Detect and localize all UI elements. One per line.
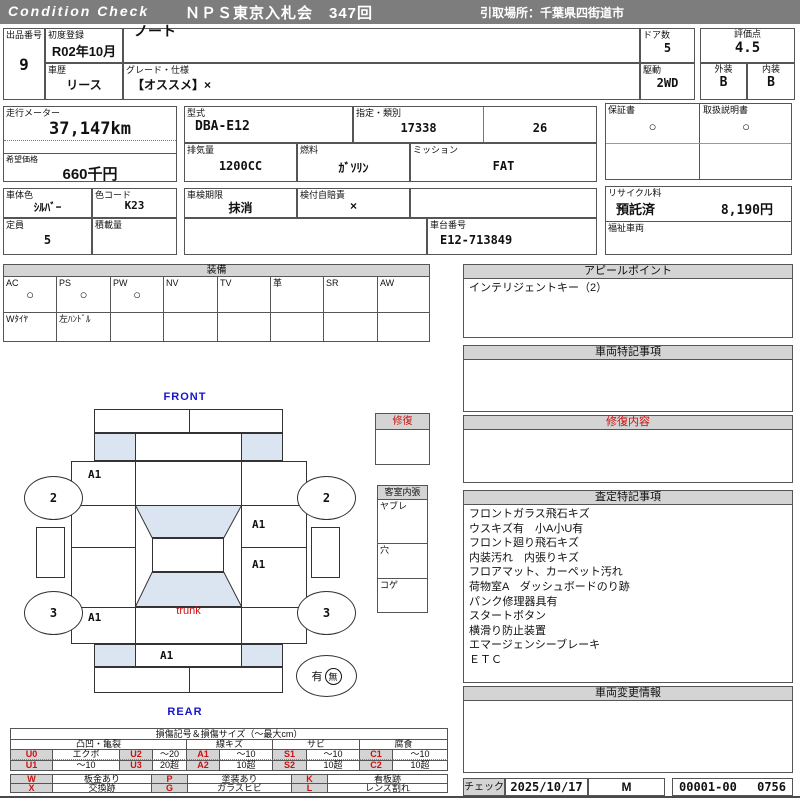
recycle-label: リサイクル料 bbox=[606, 187, 791, 199]
equipment-cell-ps: PS○ bbox=[56, 276, 111, 313]
legend-code: U1 bbox=[10, 760, 53, 771]
equipment-label: AW bbox=[378, 277, 429, 289]
legend-code: S2 bbox=[272, 760, 307, 771]
repair-mini-header: 修復 bbox=[376, 414, 429, 430]
repair-mini-box: 修復 bbox=[375, 413, 430, 465]
drive-value: 2WD bbox=[641, 76, 694, 90]
front-left-corner-panel bbox=[94, 433, 136, 461]
legend-code: U3 bbox=[119, 760, 153, 771]
fuel-value: ｶﾞｿﾘﾝ bbox=[298, 159, 409, 176]
capacity-cell: 定員 5 bbox=[3, 218, 92, 255]
insurance-cell: 検付自賠責 × bbox=[297, 188, 410, 218]
assessment-line: フロント廻り飛石キズ bbox=[469, 536, 787, 551]
auction-sheet: Condition Check ＮＰＳ東京入札会 347回 引取場所：千葉県四街… bbox=[0, 0, 800, 800]
doors-value: 5 bbox=[641, 41, 694, 55]
cabin-row-label: ヤブレ bbox=[378, 500, 427, 512]
trunk-lid-panel bbox=[135, 644, 242, 667]
pickup-location: 引取場所：千葉県四街道市 bbox=[480, 4, 624, 21]
hood-panel bbox=[135, 433, 242, 461]
displacement-cell: 排気量 1200CC bbox=[184, 143, 297, 182]
repair-detail-header: 修復内容 bbox=[464, 416, 792, 430]
front-label: FRONT bbox=[150, 391, 220, 403]
class2-value: 26 bbox=[483, 121, 597, 135]
model-name-cell: ノート bbox=[123, 28, 640, 63]
damage-mark: A1 bbox=[252, 518, 265, 531]
fuel-cell: 燃料 ｶﾞｿﾘﾝ bbox=[297, 143, 410, 182]
lot-number-label: 出品番号 bbox=[4, 29, 44, 41]
body-color-value: ｼﾙﾊﾞｰ bbox=[4, 199, 91, 215]
manual-value: ○ bbox=[699, 119, 793, 134]
grade-label: グレード・仕様 bbox=[124, 64, 639, 76]
class-label: 指定・類別 bbox=[354, 107, 596, 119]
capacity-value: 5 bbox=[4, 233, 91, 247]
legend-value: 10超 bbox=[306, 760, 360, 771]
score-value: 4.5 bbox=[701, 40, 794, 56]
equipment-label: NV bbox=[164, 277, 217, 289]
empty-cell bbox=[410, 188, 597, 218]
equipment-extra-cell bbox=[270, 312, 324, 342]
transmission-cell: ミッション FAT bbox=[410, 143, 597, 182]
recycle-fee: 8,190円 bbox=[721, 199, 773, 218]
legend-code: G bbox=[151, 783, 188, 793]
equipment-cell-ac: AC○ bbox=[3, 276, 57, 313]
insurance-value: × bbox=[298, 199, 409, 213]
spare-has-label: 有 bbox=[312, 668, 323, 684]
legend-value: ガラスヒビ bbox=[187, 783, 292, 793]
body-color-cell: 車体色 ｼﾙﾊﾞｰ bbox=[3, 188, 92, 218]
damage-mark: A1 bbox=[88, 611, 101, 624]
equipment-label: SR bbox=[324, 277, 377, 289]
appeal-panel: アピールポイント インテリジェントキー（2） bbox=[463, 264, 793, 338]
legend-value: 〜10 bbox=[392, 749, 448, 760]
interior-grade-cell: 内装 B bbox=[747, 63, 795, 100]
equipment-value: ○ bbox=[57, 287, 110, 302]
front-bumper bbox=[94, 409, 283, 433]
legend-value: 〜10 bbox=[306, 749, 360, 760]
vehicle-changes-header: 車両変更情報 bbox=[464, 687, 792, 701]
assessment-line: スタートボタン bbox=[469, 609, 787, 624]
transmission-label: ミッション bbox=[411, 144, 596, 156]
model-code-value: DBA-E12 bbox=[185, 119, 352, 134]
first-registration-value: R02年10月 bbox=[46, 41, 122, 60]
doors-label: ドア数 bbox=[641, 29, 694, 41]
inspection-cell: 車検期限 抹消 bbox=[184, 188, 297, 218]
legend-code: U0 bbox=[10, 749, 53, 760]
equipment-value: ○ bbox=[4, 287, 56, 302]
assessment-line: 荷物室A ダッシュボードのり跡 bbox=[469, 580, 787, 595]
legend-code: A2 bbox=[186, 760, 220, 771]
color-code-value: K23 bbox=[93, 199, 176, 212]
damage-mark: A1 bbox=[88, 468, 101, 481]
equipment-cell-leather: 革 bbox=[270, 276, 324, 313]
divider bbox=[4, 140, 176, 141]
appeal-line: インテリジェントキー（2） bbox=[464, 279, 792, 298]
legend-value: 10超 bbox=[392, 760, 448, 771]
grade-value: 【オススメ】× bbox=[124, 76, 639, 93]
load-cell: 積載量 bbox=[92, 218, 177, 255]
check-date-cell: 2025/10/17 bbox=[505, 778, 588, 796]
cabin-interior-box: 客室内張 ヤブレ 穴 コゲ bbox=[377, 485, 428, 613]
equipment-extra-cell bbox=[110, 312, 164, 342]
interior-grade-label: 内装 bbox=[748, 64, 794, 75]
rear-right-corner-panel bbox=[241, 644, 283, 667]
price-value: 660千円 bbox=[4, 163, 176, 184]
grade-cell: グレード・仕様 【オススメ】× bbox=[123, 63, 640, 100]
equipment-label: TV bbox=[218, 277, 270, 289]
legend-code: L bbox=[291, 783, 328, 793]
legend-code: U2 bbox=[119, 749, 153, 760]
first-registration-cell: 初度登録 R02年10月 bbox=[45, 28, 123, 63]
appeal-header: アピールポイント bbox=[464, 265, 792, 279]
rear-left-corner-panel bbox=[94, 644, 136, 667]
divider bbox=[699, 104, 700, 179]
equipment-extra-cell bbox=[163, 312, 218, 342]
equipment-extra-cell: Wﾀｲﾔ bbox=[3, 312, 57, 342]
equipment-extra-cell bbox=[377, 312, 430, 342]
equipment-cell-nv: NV bbox=[163, 276, 218, 313]
divider bbox=[606, 143, 791, 144]
spare-none-circled: 無 bbox=[325, 668, 342, 685]
history-label: 車歴 bbox=[46, 64, 122, 76]
displacement-label: 排気量 bbox=[185, 144, 296, 156]
model-code-cell: 型式 DBA-E12 bbox=[184, 106, 353, 143]
manual-label: 取扱説明書 bbox=[701, 104, 750, 116]
page-bottom-rule bbox=[0, 796, 800, 798]
assessment-lines: フロントガラス飛石キズ ウスキズ有 小A小U有 フロント廻り飛石キズ 内装汚れ … bbox=[464, 505, 792, 670]
lot-number-value: 9 bbox=[4, 55, 44, 74]
cabin-row-label: コゲ bbox=[378, 579, 427, 591]
check-number: 0756 bbox=[757, 779, 786, 795]
rear-window-glass bbox=[135, 572, 242, 607]
documents-box: 保証書 ○ 取扱説明書 ○ bbox=[605, 103, 792, 180]
doors-cell: ドア数 5 bbox=[640, 28, 695, 63]
rear-right-wheel: 3 bbox=[297, 591, 356, 635]
legend-code: S1 bbox=[272, 749, 307, 760]
legend-value: 10超 bbox=[219, 760, 273, 771]
odometer-price-box: 走行メーター 37,147km 希望価格 660千円 bbox=[3, 106, 177, 182]
legend-code: X bbox=[10, 783, 53, 793]
rear-label: REAR bbox=[150, 706, 220, 718]
score-cell: 評価点 4.5 bbox=[700, 28, 795, 63]
transmission-value: FAT bbox=[411, 159, 596, 173]
equipment-extra-cell bbox=[323, 312, 378, 342]
cabin-interior-header: 客室内張 bbox=[378, 486, 427, 500]
empty-cell bbox=[184, 218, 427, 255]
check-code-cell: 00001-00 0756 bbox=[672, 778, 793, 796]
assessment-line: 横滑り防止装置 bbox=[469, 624, 787, 639]
model-name-value: ノート bbox=[124, 21, 639, 41]
model-code-label: 型式 bbox=[185, 107, 352, 119]
interior-grade-value: B bbox=[748, 75, 794, 90]
fuel-label: 燃料 bbox=[298, 144, 409, 156]
capacity-label: 定員 bbox=[4, 219, 91, 231]
assessment-line: パンク修理器具有 bbox=[469, 595, 787, 610]
cabin-row-tear: ヤブレ bbox=[378, 500, 427, 544]
equipment-cell-aw: AW bbox=[377, 276, 430, 313]
chassis-cell: 車台番号 E12-713849 bbox=[427, 218, 597, 255]
front-right-wheel: 2 bbox=[297, 476, 356, 520]
first-registration-label: 初度登録 bbox=[46, 29, 122, 41]
vehicle-changes-panel: 車両変更情報 bbox=[463, 686, 793, 773]
history-value: リース bbox=[46, 76, 122, 93]
equipment-extra-cell: 左ﾊﾝﾄﾞﾙ bbox=[56, 312, 111, 342]
windshield-glass bbox=[135, 505, 242, 538]
history-cell: 車歴 リース bbox=[45, 63, 123, 100]
class1-value: 17338 bbox=[354, 121, 483, 135]
equipment-extra-label: 左ﾊﾝﾄﾞﾙ bbox=[57, 313, 110, 325]
color-code-cell: 色コード K23 bbox=[92, 188, 177, 218]
legend-value: 〜10 bbox=[219, 749, 273, 760]
assessment-line: 内装汚れ 内張りキズ bbox=[469, 551, 787, 566]
equipment-extra-cell bbox=[217, 312, 271, 342]
exterior-grade-label: 外装 bbox=[701, 64, 746, 75]
check-inspector-cell: M bbox=[588, 778, 665, 796]
legend-value: 〜10 bbox=[52, 760, 120, 771]
legend-value: レンズ割れ bbox=[327, 783, 448, 793]
trunk-label: trunk bbox=[135, 605, 242, 617]
legend-value: 〜20 bbox=[152, 749, 187, 760]
vehicle-notes-panel: 車両特記事項 bbox=[463, 345, 793, 412]
recycle-welfare-box: リサイクル料 預託済 8,190円 福祉車両 bbox=[605, 186, 792, 255]
front-left-wheel: 2 bbox=[24, 476, 83, 520]
warranty-value: ○ bbox=[606, 119, 699, 134]
legend-value: エクボ bbox=[52, 749, 120, 760]
assessment-line: フロアマット、カーペット汚れ bbox=[469, 565, 787, 580]
vehicle-notes-header: 車両特記事項 bbox=[464, 346, 792, 360]
recycle-row: 預託済 8,190円 bbox=[606, 199, 791, 218]
assessment-line: ＥＴＣ bbox=[469, 653, 787, 668]
repair-detail-panel: 修復内容 bbox=[463, 415, 793, 483]
diagram-line bbox=[241, 547, 307, 548]
brand-logo: Condition Check bbox=[8, 3, 149, 19]
chassis-value: E12-713849 bbox=[428, 233, 596, 247]
welfare-label: 福祉車両 bbox=[606, 222, 646, 234]
cabin-row-label: 穴 bbox=[378, 544, 427, 556]
equipment-cell-tv: TV bbox=[217, 276, 271, 313]
drive-cell: 駆動 2WD bbox=[640, 63, 695, 100]
equipment-cell-sr: SR bbox=[323, 276, 378, 313]
legend-value: 20超 bbox=[152, 760, 187, 771]
assessment-panel: 査定特記事項 フロントガラス飛石キズ ウスキズ有 小A小U有 フロント廻り飛石キ… bbox=[463, 490, 793, 683]
inspection-value: 抹消 bbox=[185, 199, 296, 216]
rear-bumper bbox=[94, 667, 283, 693]
rear-left-wheel: 3 bbox=[24, 591, 83, 635]
damage-mark: A1 bbox=[160, 649, 173, 662]
recycle-status: 預託済 bbox=[616, 199, 655, 218]
load-label: 積載量 bbox=[93, 219, 176, 231]
auction-title: ＮＰＳ東京入札会 347回 bbox=[185, 2, 373, 23]
legend-code: A1 bbox=[186, 749, 220, 760]
score-label: 評価点 bbox=[701, 29, 794, 40]
divider bbox=[189, 668, 190, 692]
legend-value: 交換跡 bbox=[52, 783, 152, 793]
diagram-line bbox=[71, 547, 135, 548]
equipment-cell-pw: PW○ bbox=[110, 276, 164, 313]
assessment-line: エマージェンシーブレーキ bbox=[469, 638, 787, 653]
legend-code: C1 bbox=[359, 749, 393, 760]
check-label-cell: チェック bbox=[463, 778, 505, 796]
divider bbox=[189, 410, 190, 432]
odometer-value: 37,147km bbox=[4, 119, 176, 139]
odometer-label: 走行メーター bbox=[4, 107, 176, 119]
assessment-line: フロントガラス飛石キズ bbox=[469, 507, 787, 522]
right-side-sill bbox=[311, 527, 340, 578]
damage-mark: A1 bbox=[252, 558, 265, 571]
exterior-grade-cell: 外装 B bbox=[700, 63, 747, 100]
equipment-label: 革 bbox=[271, 277, 323, 289]
equipment-extra-label: Wﾀｲﾔ bbox=[4, 313, 56, 325]
exterior-grade-value: B bbox=[701, 75, 746, 90]
equipment-value: ○ bbox=[111, 287, 163, 302]
legend-code: C2 bbox=[359, 760, 393, 771]
roof-panel bbox=[152, 538, 224, 572]
cabin-row-burn: コゲ bbox=[378, 579, 427, 613]
assessment-line: ウスキズ有 小A小U有 bbox=[469, 522, 787, 537]
front-right-corner-panel bbox=[241, 433, 283, 461]
class-cell: 指定・類別 17338 26 bbox=[353, 106, 597, 143]
spare-tire-indicator: 有 無 bbox=[296, 655, 357, 697]
displacement-value: 1200CC bbox=[185, 159, 296, 173]
left-side-sill bbox=[36, 527, 65, 578]
check-code: 00001-00 bbox=[679, 779, 737, 795]
chassis-label: 車台番号 bbox=[428, 219, 596, 231]
drive-label: 駆動 bbox=[641, 64, 694, 76]
assessment-header: 査定特記事項 bbox=[464, 491, 792, 505]
lot-number-cell: 出品番号 9 bbox=[3, 28, 45, 100]
cabin-row-hole: 穴 bbox=[378, 544, 427, 579]
